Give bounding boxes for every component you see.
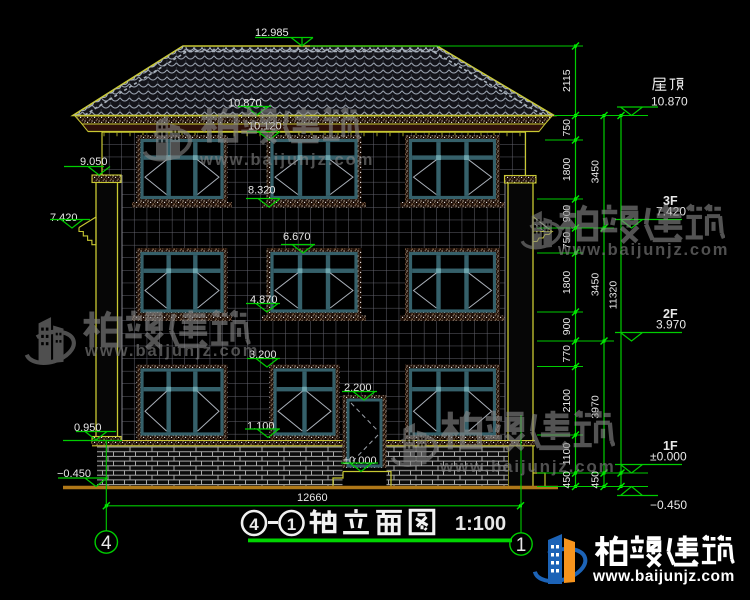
svg-text:3450: 3450 [590, 273, 602, 297]
svg-text:www.baijunjz.com: www.baijunjz.com [439, 457, 616, 476]
svg-text:1800: 1800 [561, 271, 573, 295]
svg-text:10.870: 10.870 [228, 98, 262, 110]
svg-text:12660: 12660 [297, 492, 328, 504]
svg-text:4: 4 [101, 533, 112, 554]
svg-text:2100: 2100 [561, 389, 573, 413]
svg-text:1800: 1800 [561, 158, 573, 182]
svg-text:www.baijunjz.com: www.baijunjz.com [84, 342, 259, 360]
svg-text:0.950: 0.950 [74, 422, 102, 434]
svg-text:www.baijunjz.com: www.baijunjz.com [199, 151, 374, 169]
svg-text:www.baijunjz.com: www.baijunjz.com [557, 241, 729, 259]
svg-text:1.100: 1.100 [247, 421, 275, 433]
svg-text:3.970: 3.970 [656, 318, 686, 332]
svg-text:750: 750 [561, 119, 573, 137]
svg-text:−0.450: −0.450 [650, 498, 687, 512]
svg-text:2115: 2115 [561, 69, 573, 92]
svg-text:4: 4 [249, 515, 259, 534]
svg-text:11320: 11320 [608, 281, 620, 310]
svg-text:1: 1 [287, 515, 296, 534]
svg-text:www.baijunjz.com: www.baijunjz.com [592, 568, 735, 585]
svg-text:3450: 3450 [590, 160, 602, 184]
svg-text:2.200: 2.200 [344, 382, 372, 394]
svg-text:±0.000: ±0.000 [343, 455, 377, 467]
svg-text:±0.000: ±0.000 [650, 450, 687, 464]
svg-text:900: 900 [561, 318, 573, 336]
svg-text:1:100: 1:100 [455, 513, 506, 535]
svg-text:1: 1 [516, 535, 527, 556]
svg-text:4.870: 4.870 [250, 294, 278, 306]
svg-text:8.320: 8.320 [248, 185, 276, 197]
svg-text:770: 770 [561, 345, 573, 363]
svg-text:6.670: 6.670 [283, 231, 311, 243]
